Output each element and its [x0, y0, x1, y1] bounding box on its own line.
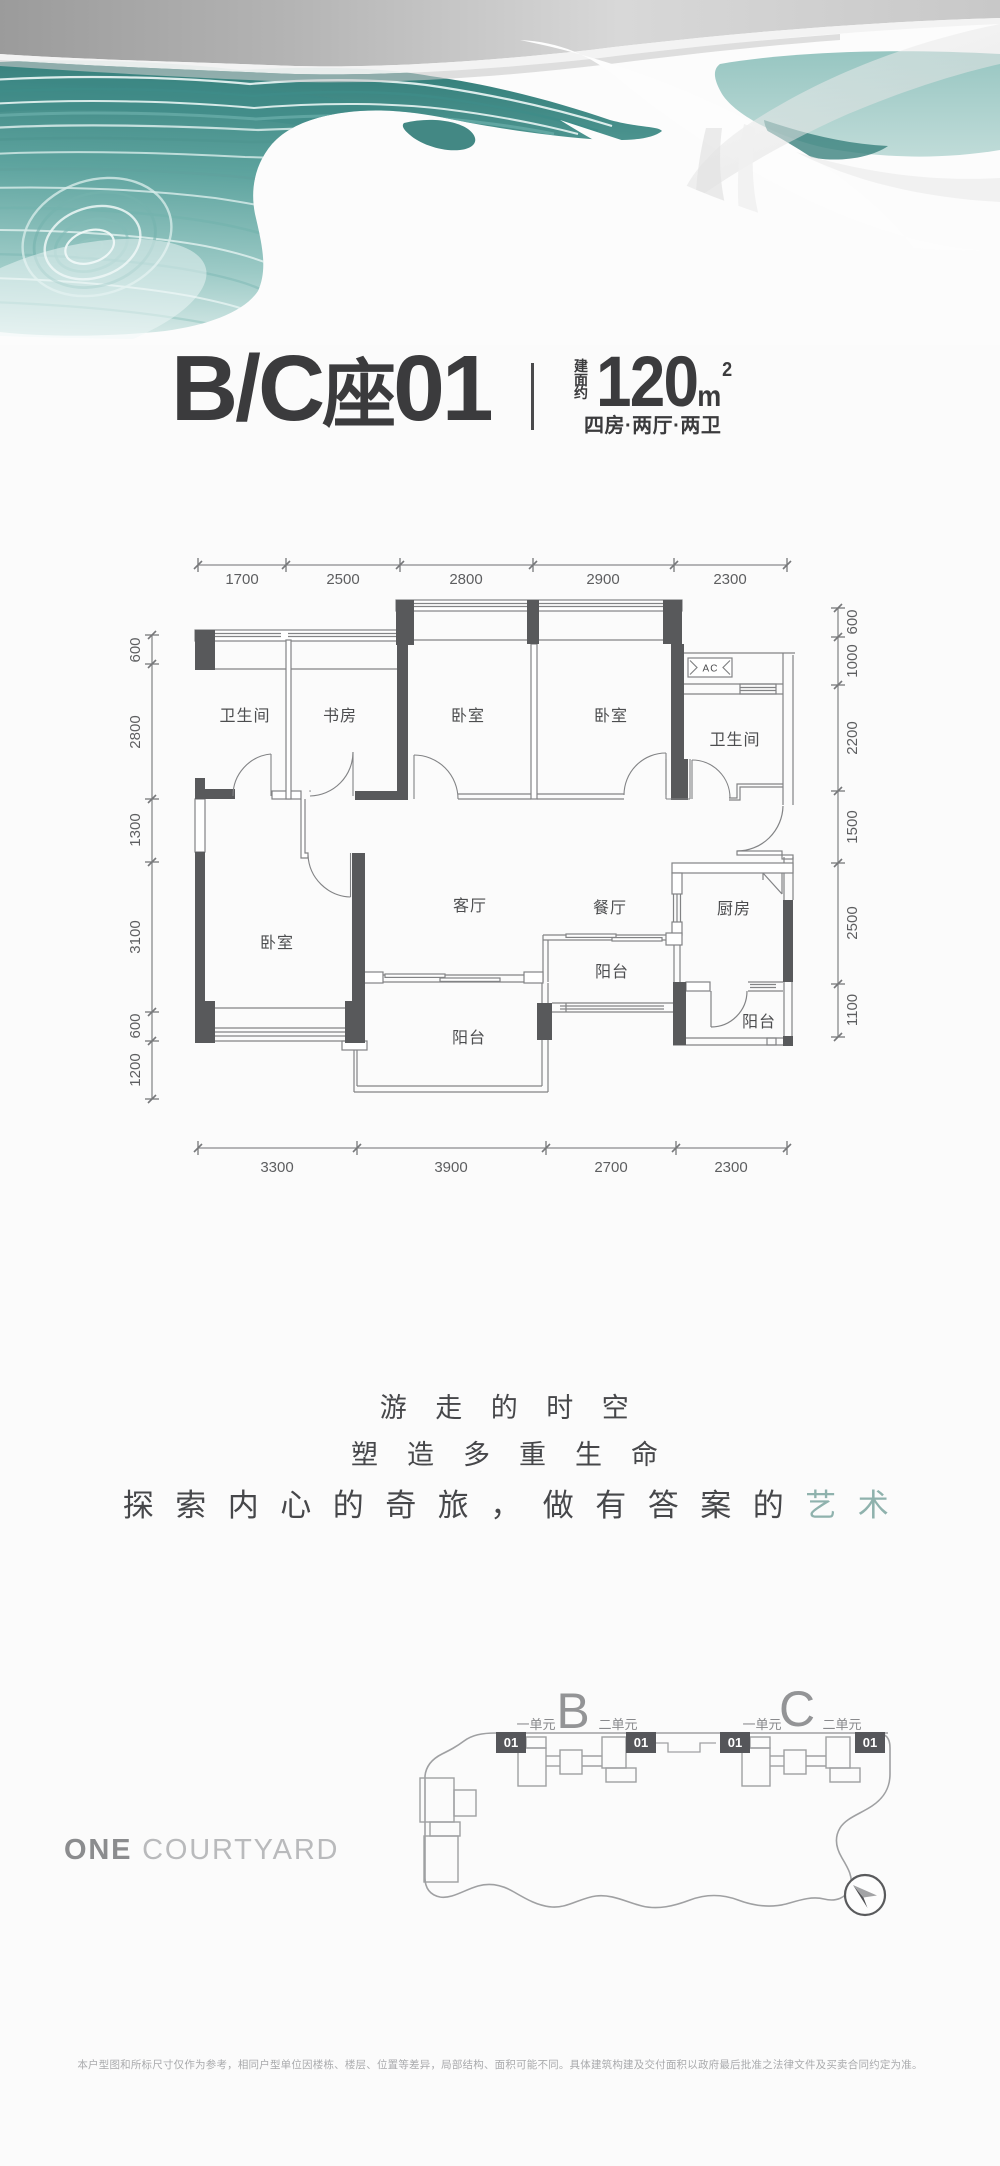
svg-text:01: 01: [863, 1735, 877, 1750]
svg-text:2800: 2800: [449, 571, 482, 588]
svg-text:01: 01: [728, 1735, 742, 1750]
svg-text:1200: 1200: [127, 1053, 144, 1086]
svg-text:一单元: 一单元: [516, 1717, 555, 1732]
svg-text:2500: 2500: [844, 906, 861, 939]
svg-text:AC: AC: [703, 664, 719, 675]
svg-text:600: 600: [127, 637, 144, 662]
svg-text:2200: 2200: [844, 721, 861, 754]
svg-text:卧室: 卧室: [594, 707, 628, 725]
svg-text:二单元: 二单元: [598, 1717, 637, 1732]
svg-text:一单元: 一单元: [742, 1717, 781, 1732]
svg-text:2800: 2800: [127, 715, 144, 748]
svg-text:1700: 1700: [225, 571, 258, 588]
svg-text:2700: 2700: [594, 1159, 627, 1176]
svg-text:01: 01: [504, 1735, 518, 1750]
svg-text:餐厅: 餐厅: [593, 899, 627, 917]
svg-text:阳台: 阳台: [452, 1029, 486, 1047]
svg-text:2900: 2900: [586, 571, 619, 588]
svg-text:2300: 2300: [713, 571, 746, 588]
svg-text:600: 600: [127, 1013, 144, 1038]
svg-text:3900: 3900: [434, 1159, 467, 1176]
svg-text:书房: 书房: [323, 707, 357, 725]
svg-text:二单元: 二单元: [822, 1717, 861, 1732]
svg-text:01: 01: [634, 1735, 648, 1750]
svg-text:1000: 1000: [844, 644, 861, 677]
svg-text:客厅: 客厅: [453, 897, 487, 915]
svg-text:卫生间: 卫生间: [219, 707, 270, 725]
svg-text:1300: 1300: [127, 813, 144, 846]
svg-text:1100: 1100: [844, 994, 861, 1026]
svg-text:卫生间: 卫生间: [709, 731, 760, 749]
svg-text:600: 600: [844, 609, 861, 634]
svg-text:2500: 2500: [326, 571, 359, 588]
svg-text:卧室: 卧室: [451, 707, 485, 725]
svg-text:3300: 3300: [260, 1159, 293, 1176]
svg-text:3100: 3100: [127, 920, 144, 953]
svg-text:1500: 1500: [844, 810, 861, 843]
svg-text:2300: 2300: [714, 1159, 747, 1176]
svg-text:卧室: 卧室: [260, 934, 294, 952]
svg-text:B: B: [556, 1683, 589, 1739]
svg-text:厨房: 厨房: [717, 900, 751, 918]
svg-text:C: C: [779, 1681, 815, 1737]
svg-text:阳台: 阳台: [742, 1013, 776, 1031]
svg-text:阳台: 阳台: [595, 963, 629, 981]
